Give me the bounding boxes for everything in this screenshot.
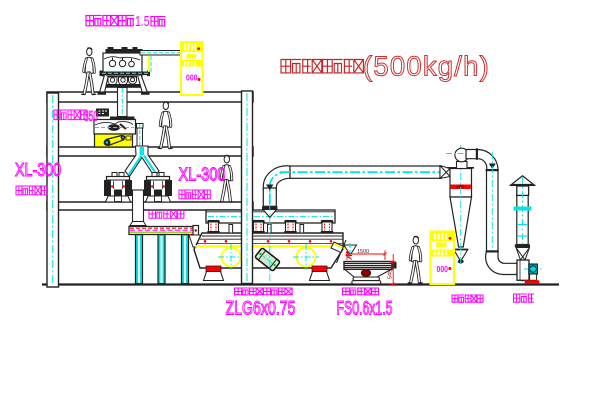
svg-text:000: 000 — [437, 264, 449, 274]
svg-text:400: 400 — [456, 185, 464, 191]
svg-text:(500kg/h): (500kg/h) — [363, 51, 490, 82]
svg-text:1500: 1500 — [357, 249, 369, 255]
svg-text:1.5: 1.5 — [135, 13, 150, 30]
svg-text:XL-300: XL-300 — [15, 159, 61, 180]
svg-text:ZLG6x0.75: ZLG6x0.75 — [226, 299, 296, 320]
svg-text:350: 350 — [84, 109, 98, 125]
svg-text:000: 000 — [186, 73, 198, 83]
svg-text:548: 548 — [388, 270, 394, 279]
svg-text:XL-300: XL-300 — [179, 164, 226, 185]
svg-text:FS0.6x1.5: FS0.6x1.5 — [337, 299, 393, 320]
